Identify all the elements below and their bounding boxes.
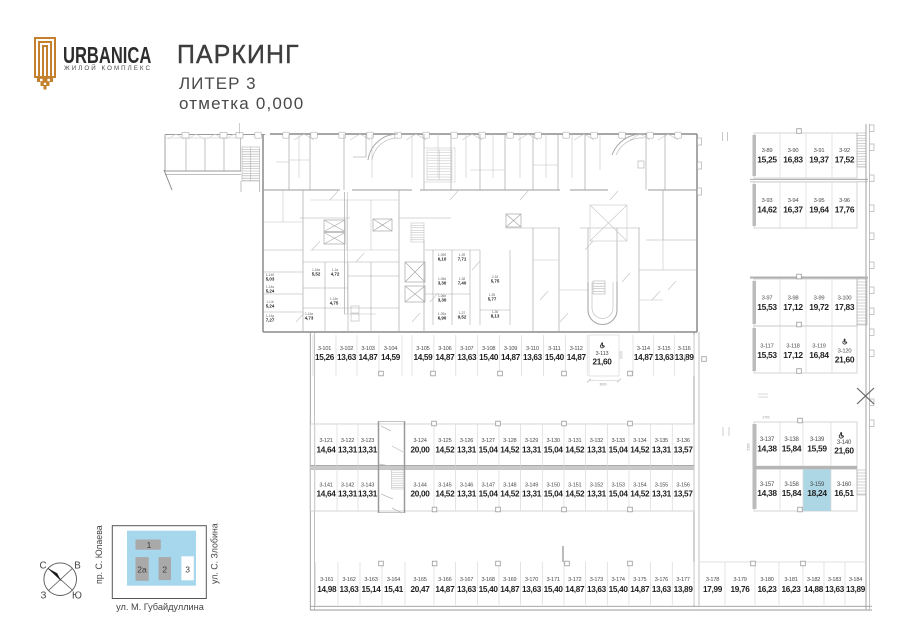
svg-text:3-114: 3-114 (637, 346, 650, 352)
svg-text:14,52: 14,52 (630, 490, 650, 499)
svg-text:15,53: 15,53 (757, 302, 777, 312)
svg-text:14,87: 14,87 (565, 585, 585, 594)
svg-text:3-176: 3-176 (655, 577, 668, 583)
svg-text:15,25: 15,25 (757, 155, 777, 165)
svg-text:14,59: 14,59 (413, 353, 433, 362)
svg-text:3-124: 3-124 (413, 438, 426, 444)
svg-text:3-98: 3-98 (788, 296, 799, 302)
svg-text:13,31: 13,31 (457, 490, 477, 499)
svg-text:3,30: 3,30 (438, 281, 447, 286)
svg-text:17,12: 17,12 (783, 302, 803, 312)
svg-text:3-148: 3-148 (503, 483, 516, 489)
svg-text:3-108: 3-108 (482, 346, 495, 352)
svg-text:3-147: 3-147 (481, 483, 494, 489)
svg-text:ул. М. Губайдуллина: ул. М. Губайдуллина (116, 602, 205, 612)
svg-text:19,72: 19,72 (809, 302, 829, 312)
svg-text:18,24: 18,24 (807, 488, 827, 498)
svg-text:13,63: 13,63 (523, 353, 543, 362)
svg-text:13,31: 13,31 (338, 446, 358, 455)
svg-text:14,87: 14,87 (500, 585, 520, 594)
svg-text:3-166: 3-166 (438, 577, 451, 583)
svg-text:3-174: 3-174 (611, 577, 624, 583)
svg-text:3-103: 3-103 (361, 346, 374, 352)
svg-text:15,41: 15,41 (384, 585, 404, 594)
svg-text:13,89: 13,89 (674, 585, 694, 594)
svg-text:13,63: 13,63 (522, 585, 542, 594)
svg-text:3-178: 3-178 (706, 577, 719, 583)
svg-text:13,57: 13,57 (674, 446, 694, 455)
svg-text:15,40: 15,40 (609, 585, 629, 594)
svg-text:3-96: 3-96 (839, 198, 850, 204)
svg-text:14,98: 14,98 (317, 585, 337, 594)
svg-text:19,37: 19,37 (809, 155, 829, 165)
svg-text:14,87: 14,87 (634, 353, 654, 362)
svg-text:3-177: 3-177 (676, 577, 689, 583)
svg-text:3-156: 3-156 (676, 483, 689, 489)
svg-text:3-164: 3-164 (387, 577, 400, 583)
svg-text:3-126: 3-126 (460, 438, 473, 444)
svg-text:3-151: 3-151 (568, 483, 581, 489)
svg-text:16,23: 16,23 (782, 585, 802, 594)
svg-text:3-146: 3-146 (460, 483, 473, 489)
svg-text:4,73: 4,73 (305, 316, 314, 321)
svg-text:14,52: 14,52 (630, 446, 650, 455)
svg-text:3-91: 3-91 (814, 148, 825, 154)
svg-text:3-165: 3-165 (413, 577, 426, 583)
svg-text:15,04: 15,04 (479, 490, 499, 499)
svg-text:3-180: 3-180 (760, 577, 773, 583)
svg-text:3-183: 3-183 (828, 577, 841, 583)
svg-text:15,26: 15,26 (315, 353, 335, 362)
svg-text:3-99: 3-99 (814, 296, 825, 302)
svg-text:15,04: 15,04 (544, 490, 564, 499)
svg-text:С: С (39, 561, 46, 572)
svg-text:3-112: 3-112 (570, 346, 583, 352)
svg-text:3-117: 3-117 (760, 344, 773, 350)
svg-text:14,52: 14,52 (565, 490, 585, 499)
svg-text:16,51: 16,51 (834, 488, 854, 498)
svg-text:3-102: 3-102 (340, 346, 353, 352)
svg-text:14,52: 14,52 (565, 446, 585, 455)
svg-text:2а: 2а (137, 565, 147, 575)
svg-text:3-131: 3-131 (568, 438, 581, 444)
svg-text:14,52: 14,52 (500, 490, 520, 499)
svg-text:3-115: 3-115 (658, 346, 671, 352)
svg-text:14,87: 14,87 (359, 353, 379, 362)
svg-text:3-152: 3-152 (590, 483, 603, 489)
svg-text:3-145: 3-145 (438, 483, 451, 489)
svg-text:9,52: 9,52 (458, 315, 467, 320)
svg-text:7,27: 7,27 (266, 318, 275, 323)
svg-text:16,83: 16,83 (783, 155, 803, 165)
svg-text:3-113: 3-113 (596, 351, 609, 357)
svg-text:15,04: 15,04 (479, 446, 499, 455)
svg-text:5,75: 5,75 (491, 279, 500, 284)
svg-text:3-153: 3-153 (611, 483, 624, 489)
svg-text:3-127: 3-127 (481, 438, 494, 444)
svg-text:3-118: 3-118 (786, 344, 799, 350)
svg-text:14,64: 14,64 (317, 446, 337, 455)
svg-text:15,84: 15,84 (782, 444, 802, 454)
svg-text:14,62: 14,62 (757, 205, 777, 215)
svg-text:3-134: 3-134 (633, 438, 646, 444)
svg-text:6,10: 6,10 (438, 257, 447, 262)
svg-text:7,71: 7,71 (458, 257, 467, 262)
svg-text:15,04: 15,04 (609, 490, 629, 499)
svg-text:3-163: 3-163 (364, 577, 377, 583)
svg-text:8,13: 8,13 (491, 314, 500, 319)
svg-text:3-135: 3-135 (655, 438, 668, 444)
svg-text:3-106: 3-106 (438, 346, 451, 352)
svg-text:3-141: 3-141 (319, 483, 332, 489)
svg-text:15,04: 15,04 (609, 446, 629, 455)
svg-text:16,23: 16,23 (758, 585, 778, 594)
svg-text:13,31: 13,31 (652, 446, 672, 455)
svg-text:13,63: 13,63 (655, 353, 675, 362)
svg-text:13,31: 13,31 (358, 490, 378, 499)
svg-text:3-105: 3-105 (416, 346, 429, 352)
svg-text:16,37: 16,37 (783, 205, 803, 215)
svg-text:3-125: 3-125 (438, 438, 451, 444)
svg-text:3-109: 3-109 (504, 346, 517, 352)
svg-text:5,52: 5,52 (312, 272, 321, 277)
svg-text:19,76: 19,76 (731, 585, 751, 594)
svg-text:13,63: 13,63 (652, 585, 672, 594)
svg-text:15,04: 15,04 (544, 446, 564, 455)
svg-text:5300: 5300 (747, 443, 751, 450)
svg-text:3-142: 3-142 (341, 483, 354, 489)
svg-text:3-130: 3-130 (546, 438, 559, 444)
svg-text:3-175: 3-175 (633, 577, 646, 583)
svg-text:17,83: 17,83 (835, 302, 855, 312)
svg-text:14,64: 14,64 (317, 490, 337, 499)
svg-text:13,31: 13,31 (522, 446, 542, 455)
svg-text:3-104: 3-104 (384, 346, 397, 352)
svg-text:15,84: 15,84 (782, 488, 802, 498)
svg-text:21,60: 21,60 (834, 446, 854, 456)
svg-text:14,87: 14,87 (435, 585, 455, 594)
svg-text:14,87: 14,87 (567, 353, 587, 362)
svg-text:5,03: 5,03 (266, 277, 275, 282)
svg-text:3-161: 3-161 (320, 577, 333, 583)
svg-text:3-128: 3-128 (503, 438, 516, 444)
svg-text:3-171: 3-171 (546, 577, 559, 583)
svg-text:15,40: 15,40 (545, 353, 565, 362)
svg-text:3-122: 3-122 (341, 438, 354, 444)
svg-text:8600: 8600 (684, 354, 688, 361)
svg-text:3-143: 3-143 (361, 483, 374, 489)
svg-text:3,30: 3,30 (438, 298, 447, 303)
svg-text:5,77: 5,77 (488, 297, 497, 302)
svg-text:3-116: 3-116 (678, 346, 691, 352)
svg-text:3-155: 3-155 (655, 483, 668, 489)
svg-text:13,63: 13,63 (340, 585, 360, 594)
svg-text:3-168: 3-168 (481, 577, 494, 583)
svg-text:4,72: 4,72 (331, 272, 340, 277)
svg-text:3-101: 3-101 (318, 346, 331, 352)
svg-text:3-167: 3-167 (460, 577, 473, 583)
svg-text:2700: 2700 (762, 416, 769, 420)
svg-text:3-154: 3-154 (633, 483, 646, 489)
svg-text:2: 2 (162, 565, 167, 575)
svg-text:3-119: 3-119 (812, 344, 825, 350)
svg-text:3-170: 3-170 (525, 577, 538, 583)
svg-text:13,63: 13,63 (587, 585, 607, 594)
svg-text:3-184: 3-184 (849, 577, 862, 583)
svg-text:17,12: 17,12 (783, 350, 803, 360)
svg-text:3-182: 3-182 (807, 577, 820, 583)
svg-text:3-111: 3-111 (548, 346, 561, 352)
svg-text:3-94: 3-94 (788, 198, 800, 204)
svg-text:3-133: 3-133 (611, 438, 624, 444)
svg-text:15,53: 15,53 (757, 350, 777, 360)
svg-text:3-90: 3-90 (788, 148, 799, 154)
svg-text:пр. С. Юлаева: пр. С. Юлаева (94, 525, 104, 584)
svg-text:3-89: 3-89 (762, 148, 773, 154)
svg-text:3-173: 3-173 (590, 577, 603, 583)
svg-text:4,75: 4,75 (330, 301, 339, 306)
svg-text:3-136: 3-136 (676, 438, 689, 444)
svg-text:15,59: 15,59 (807, 444, 827, 454)
svg-text:16,84: 16,84 (809, 350, 829, 360)
svg-text:20,47: 20,47 (411, 585, 431, 594)
svg-text:13,31: 13,31 (652, 490, 672, 499)
svg-text:3-150: 3-150 (546, 483, 559, 489)
svg-text:17,76: 17,76 (835, 205, 855, 215)
svg-text:15,40: 15,40 (479, 353, 499, 362)
svg-text:7,40: 7,40 (458, 281, 467, 286)
svg-text:13,31: 13,31 (587, 490, 607, 499)
svg-text:13,63: 13,63 (457, 353, 477, 362)
svg-text:14,52: 14,52 (435, 490, 455, 499)
svg-text:3-92: 3-92 (839, 148, 850, 154)
svg-text:14,38: 14,38 (757, 444, 777, 454)
svg-text:3-172: 3-172 (568, 577, 581, 583)
svg-text:3-110: 3-110 (526, 346, 539, 352)
svg-text:13,57: 13,57 (674, 490, 694, 499)
svg-text:20,00: 20,00 (411, 490, 431, 499)
svg-text:20,00: 20,00 (411, 446, 431, 455)
svg-text:3-107: 3-107 (460, 346, 473, 352)
svg-text:19,64: 19,64 (809, 205, 829, 215)
svg-text:13,63: 13,63 (337, 353, 357, 362)
svg-text:3-149: 3-149 (525, 483, 538, 489)
svg-text:3-179: 3-179 (733, 577, 746, 583)
svg-text:Ю: Ю (72, 591, 82, 602)
svg-text:3-139: 3-139 (810, 437, 825, 443)
svg-text:3-93: 3-93 (762, 198, 773, 204)
svg-text:13,31: 13,31 (587, 446, 607, 455)
svg-text:5,24: 5,24 (266, 304, 275, 309)
svg-text:В: В (74, 561, 81, 572)
svg-text:15,40: 15,40 (479, 585, 499, 594)
svg-text:14,87: 14,87 (435, 353, 455, 362)
svg-text:3-95: 3-95 (814, 198, 825, 204)
svg-text:3-121: 3-121 (319, 438, 332, 444)
svg-text:3-123: 3-123 (361, 438, 374, 444)
svg-text:ул. С. Злобина: ул. С. Злобина (210, 523, 220, 584)
svg-text:3600: 3600 (599, 383, 606, 387)
svg-text:3: 3 (185, 565, 190, 575)
svg-text:14,59: 14,59 (381, 353, 401, 362)
svg-text:13,31: 13,31 (522, 490, 542, 499)
svg-text:3-144: 3-144 (413, 483, 426, 489)
svg-text:15,14: 15,14 (362, 585, 382, 594)
svg-text:21,60: 21,60 (835, 355, 855, 365)
svg-text:17,99: 17,99 (703, 585, 723, 594)
svg-text:14,87: 14,87 (630, 585, 650, 594)
svg-text:17,52: 17,52 (835, 155, 855, 165)
svg-text:13,31: 13,31 (338, 490, 358, 499)
svg-text:13,31: 13,31 (457, 446, 477, 455)
svg-text:13,63: 13,63 (457, 585, 477, 594)
svg-text:3-97: 3-97 (762, 296, 773, 302)
svg-text:13,89: 13,89 (846, 585, 866, 594)
svg-text:21,60: 21,60 (593, 358, 613, 367)
svg-text:13,63: 13,63 (825, 585, 845, 594)
svg-text:5,24: 5,24 (266, 289, 275, 294)
svg-text:14,52: 14,52 (435, 446, 455, 455)
svg-text:3-100: 3-100 (838, 296, 852, 302)
svg-text:3-138: 3-138 (784, 437, 799, 443)
svg-text:1: 1 (147, 540, 152, 550)
svg-text:3-137: 3-137 (760, 437, 775, 443)
svg-text:13,31: 13,31 (358, 446, 378, 455)
svg-text:14,88: 14,88 (804, 585, 824, 594)
svg-text:14,38: 14,38 (757, 488, 777, 498)
svg-text:3-162: 3-162 (342, 577, 355, 583)
svg-text:З: З (41, 591, 47, 602)
svg-text:3-132: 3-132 (590, 438, 603, 444)
svg-text:3-169: 3-169 (503, 577, 516, 583)
svg-text:3-129: 3-129 (525, 438, 538, 444)
svg-text:14,52: 14,52 (500, 446, 520, 455)
svg-text:14,87: 14,87 (501, 353, 521, 362)
svg-text:15,40: 15,40 (544, 585, 564, 594)
svg-text:3-181: 3-181 (784, 577, 797, 583)
svg-text:6,90: 6,90 (438, 316, 447, 321)
